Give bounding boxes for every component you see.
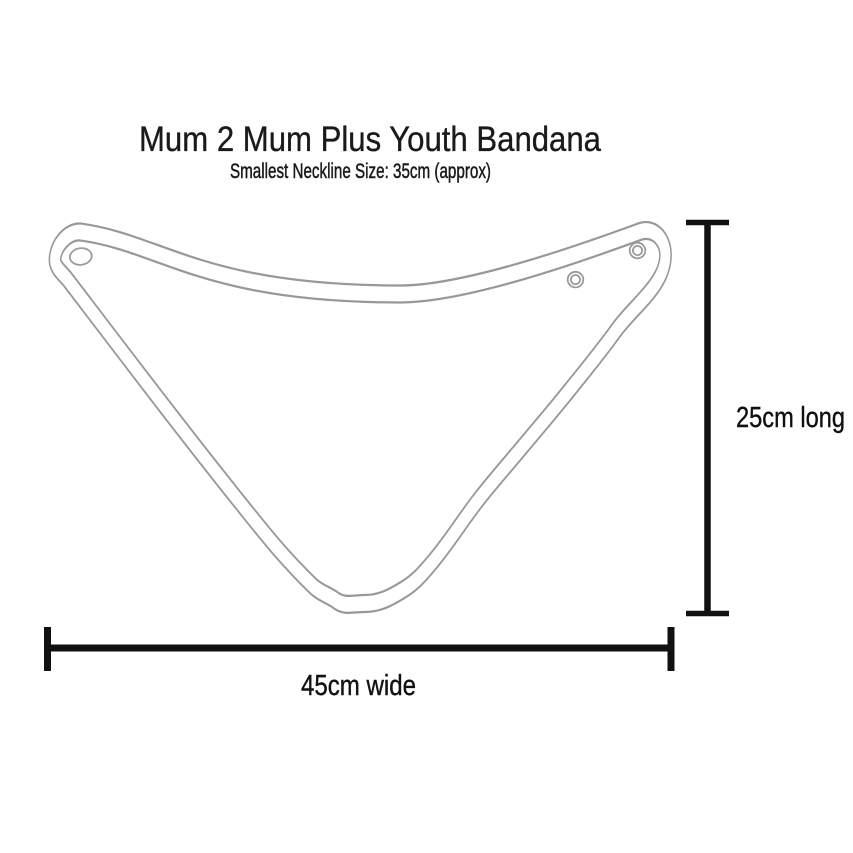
svg-text:Smallest Neckline Size: 35cm (: Smallest Neckline Size: 35cm (approx) [230, 160, 491, 183]
svg-text:45cm wide: 45cm wide [301, 670, 416, 702]
svg-text:Mum 2 Mum Plus Youth Bandana: Mum 2 Mum Plus Youth Bandana [139, 120, 601, 159]
svg-text:25cm long: 25cm long [736, 402, 845, 434]
